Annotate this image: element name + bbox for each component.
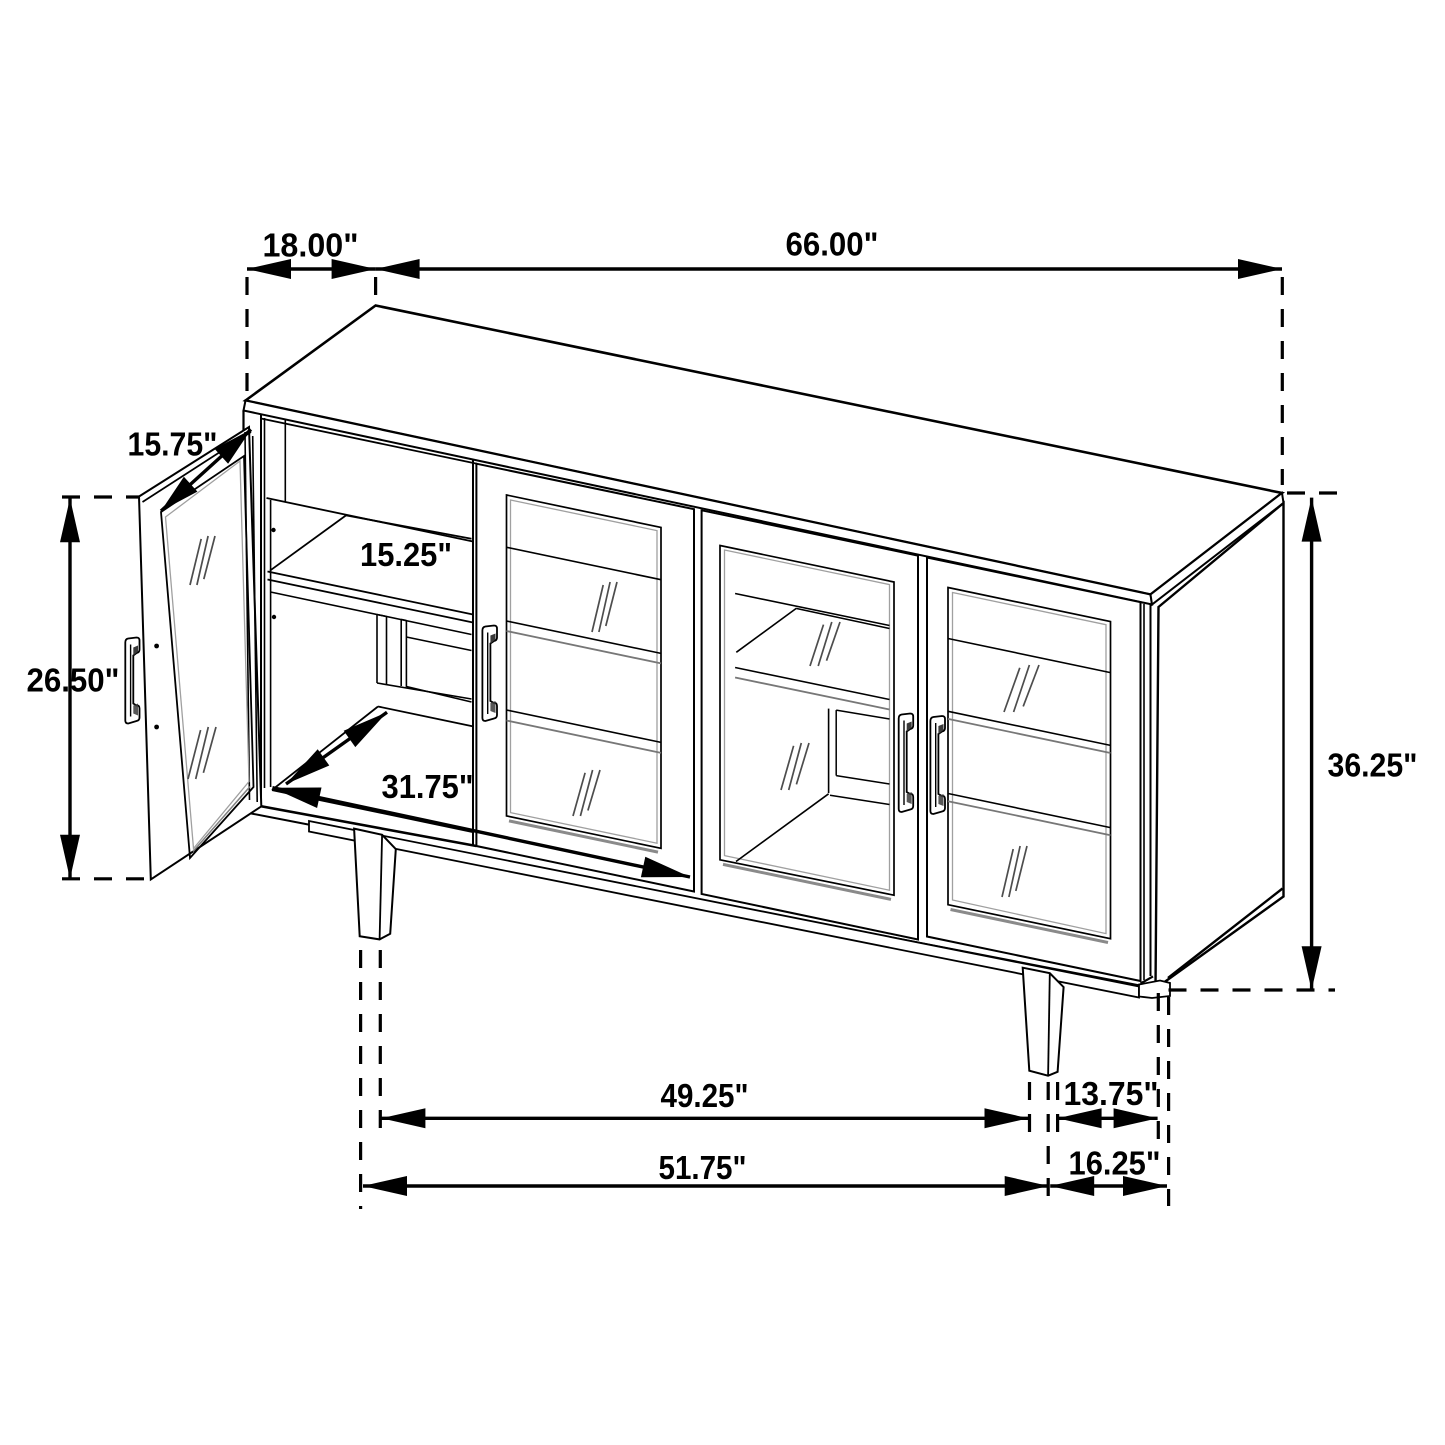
svg-text:51.75": 51.75" xyxy=(659,1149,747,1186)
svg-text:13.75": 13.75" xyxy=(1064,1075,1159,1112)
svg-text:15.25": 15.25" xyxy=(360,536,452,573)
svg-text:31.75": 31.75" xyxy=(382,768,474,805)
svg-text:66.00": 66.00" xyxy=(786,226,879,263)
svg-text:26.50": 26.50" xyxy=(27,662,120,699)
svg-text:15.75": 15.75" xyxy=(128,426,218,463)
svg-text:18.00": 18.00" xyxy=(263,227,359,264)
svg-text:16.25": 16.25" xyxy=(1069,1145,1161,1182)
svg-text:49.25": 49.25" xyxy=(661,1077,749,1114)
svg-text:36.25": 36.25" xyxy=(1328,747,1418,784)
